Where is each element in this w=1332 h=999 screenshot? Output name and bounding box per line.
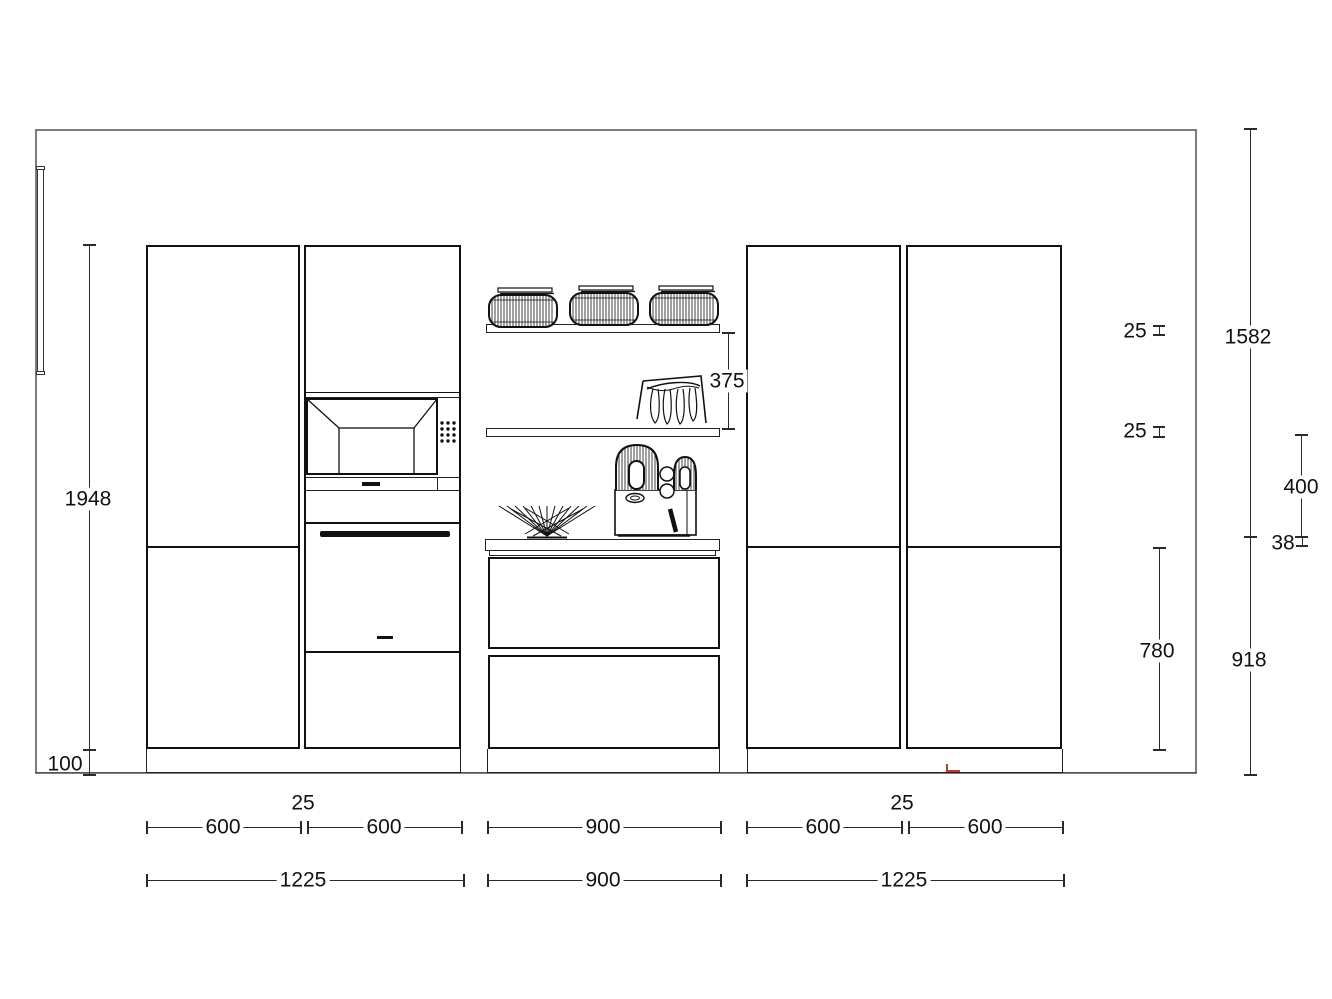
decor-bowl [499, 503, 595, 540]
dim-tick [720, 821, 722, 834]
left-wall-panel-cap-bottom [36, 371, 45, 375]
dim-line-counter-thickness [1302, 537, 1303, 547]
control-strip-bottom [306, 490, 459, 491]
dim-tick [146, 874, 148, 887]
oven-bottom-line [306, 651, 459, 653]
oven-top-line [306, 522, 459, 524]
dim-tick [722, 332, 735, 334]
dim-tick [463, 874, 465, 887]
appliance-door-bottom-line [306, 392, 459, 393]
left-cabinet-door-upper [146, 245, 300, 548]
right-cabinet-left-door-lower [746, 546, 901, 749]
microwave [306, 398, 460, 477]
lower-shelf [486, 428, 720, 437]
dim-label-row1-left-b: 600 [363, 816, 404, 839]
oven-display [377, 636, 393, 639]
baskets [488, 285, 720, 326]
dim-tick [146, 821, 148, 834]
right-cabinet-right-door-lower [906, 546, 1062, 749]
oven-handle [320, 531, 450, 537]
dim-tick [83, 244, 96, 246]
left-wall-panel-cap-top [36, 166, 45, 170]
dim-label-row1-right-b: 600 [964, 816, 1005, 839]
dim-label-wall-upper: 1582 [1222, 326, 1275, 349]
dim-tick [1295, 434, 1308, 436]
dim-label-drawer-stack: 780 [1136, 640, 1177, 663]
dim-tick [1153, 547, 1166, 549]
dim-tick [487, 821, 489, 834]
dim-line-plinth [89, 750, 90, 775]
dim-label-row2-middle: 900 [582, 869, 623, 892]
dim-label-cabinet-height: 1948 [62, 488, 115, 511]
appliance-column [304, 245, 461, 749]
control-strip-divider [437, 477, 438, 490]
left-wall-panel [37, 168, 44, 374]
dim-tick [901, 821, 903, 834]
base-drawer-top [488, 557, 720, 649]
dim-tick [746, 821, 748, 834]
right-plinth [747, 749, 1063, 773]
dim-label-shelf-top-thickness: 25 [1120, 320, 1149, 343]
dim-label-row1-left-a: 600 [202, 816, 243, 839]
dim-tick [908, 821, 910, 834]
microwave-dot-grid [440, 421, 455, 442]
dim-tick [1063, 874, 1065, 887]
dim-tick [1153, 749, 1166, 751]
dim-label-counter-thickness: 38 [1268, 532, 1297, 555]
dim-tick [722, 428, 735, 430]
dim-tick [746, 874, 748, 887]
dim-tick [1062, 821, 1064, 834]
dim-line-shelf-bottom [1159, 426, 1160, 437]
dim-label-row1-middle: 900 [582, 816, 623, 839]
dim-tick [720, 874, 722, 887]
dim-tick [300, 821, 302, 834]
dim-label-base-height: 918 [1228, 649, 1269, 672]
dim-label-row1-left-gap: 25 [288, 792, 317, 815]
dim-label-shelf-gap: 375 [706, 370, 747, 393]
dim-label-row1-right-a: 600 [802, 816, 843, 839]
right-cabinet-right-door-upper [906, 245, 1062, 548]
dim-label-shelf-bottom-thickness: 25 [1120, 420, 1149, 443]
dim-label-shelf-to-counter: 400 [1280, 476, 1321, 499]
dim-label-plinth: 100 [44, 753, 85, 776]
left-cabinet-door-lower [146, 546, 300, 749]
dim-tick [1244, 128, 1257, 130]
dim-label-row1-right-gap: 25 [887, 792, 916, 815]
middle-plinth [487, 749, 720, 773]
coffee-machine [610, 439, 698, 537]
dim-tick [1244, 774, 1257, 776]
dim-line-shelf-top [1159, 325, 1160, 335]
left-plinth [146, 749, 461, 773]
dim-tick [307, 821, 309, 834]
base-drawer-bottom [488, 655, 720, 749]
dim-label-row2-left: 1225 [277, 869, 330, 892]
dim-tick [461, 821, 463, 834]
control-strip-display [362, 482, 380, 486]
dim-label-row2-right: 1225 [878, 869, 931, 892]
countertop-under-edge [489, 551, 716, 556]
countertop [485, 539, 720, 551]
right-cabinet-left-door-upper [746, 245, 901, 548]
utensil-rack [633, 373, 713, 429]
red-marker-horizontal [946, 770, 960, 772]
dim-tick [487, 874, 489, 887]
red-marker-vertical [946, 764, 948, 772]
elevation-drawing: 1948 100 375 25 25 1582 918 400 38 780 [0, 0, 1332, 999]
